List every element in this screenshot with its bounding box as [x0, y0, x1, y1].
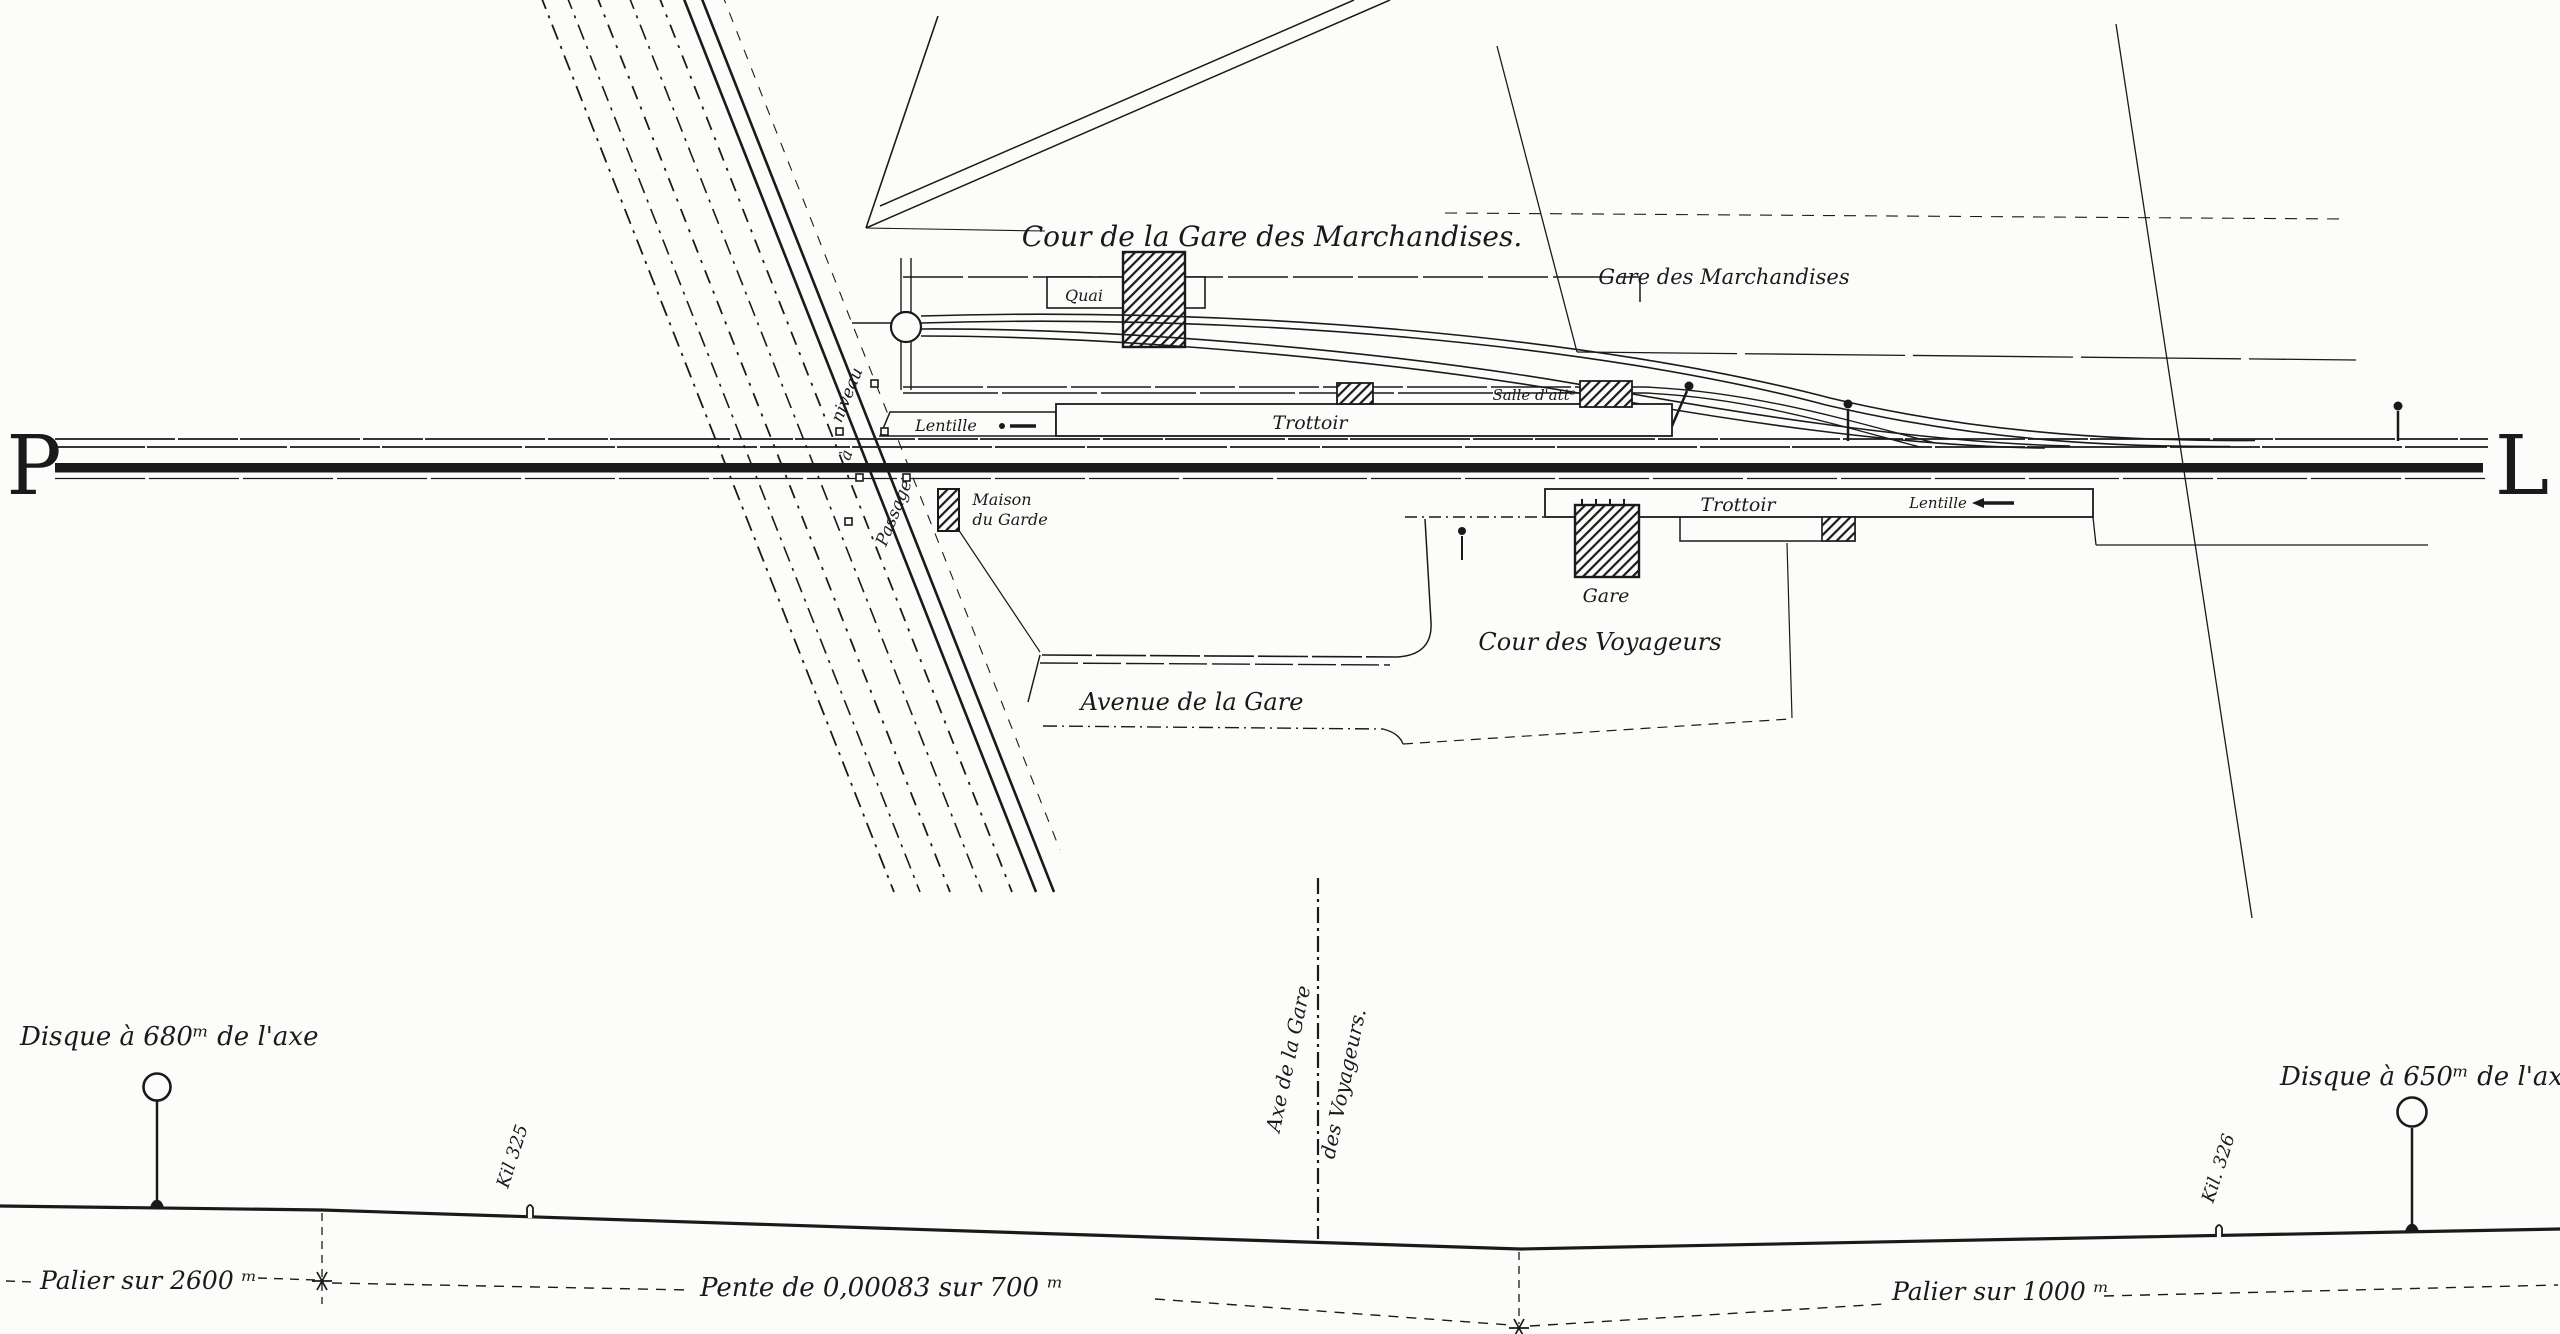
property-boundaries	[866, 0, 2356, 918]
keeper-house-label-line1: Maison	[971, 490, 1031, 509]
keeper-house-label-line2: du Garde	[972, 510, 1047, 529]
left-disc-label: Disque à 680ᵐ de l'axe	[19, 1022, 318, 1052]
crossing-word-a: à	[835, 447, 856, 463]
milepost-letter-left: P	[6, 419, 61, 514]
left-disc-base	[150, 1200, 164, 1208]
km-326-label: Kil. 326	[2198, 1131, 2240, 1206]
boundary-dashed-line	[1445, 213, 2346, 219]
right-disc-head	[2398, 1098, 2427, 1127]
goods-yard-title: Cour de la Gare des Marchandises.	[1022, 220, 1523, 253]
avenue-label: Avenue de la Gare	[1079, 688, 1304, 716]
signal-head	[1685, 382, 1694, 391]
avenue-west-cap	[1028, 655, 1040, 702]
upper-trottoir-label: Trottoir	[1272, 412, 1349, 434]
ground-profile-line	[0, 1206, 2560, 1249]
road-edge-line	[566, 0, 920, 892]
road-edge-line	[540, 0, 894, 892]
arrow-dot	[999, 423, 1005, 429]
avenue-north-edge	[1042, 655, 1397, 657]
gate-post	[871, 380, 878, 387]
signal-head	[2394, 402, 2403, 411]
road-edge-line	[596, 0, 950, 892]
right-disc-base	[2405, 1224, 2419, 1232]
signal-head	[1844, 400, 1853, 409]
upper-platforms: Lentille Trottoir Salle d'attᵉ	[880, 381, 1672, 436]
goods-shed-building	[1123, 252, 1185, 347]
left-disc-head	[144, 1074, 171, 1101]
goods-yard: Quai Cour de la Gare des Marchandises. G…	[852, 220, 1850, 390]
grade-left-label: Palier sur 2600 ᵐ	[39, 1266, 257, 1295]
grade-annotation-dashes	[6, 1281, 34, 1282]
keeper-house-building	[938, 489, 959, 531]
courtyard-east-fence	[1787, 543, 1792, 718]
station-building	[1575, 505, 1639, 577]
gate-post	[836, 428, 843, 435]
station-axis-label-line1: Axe de la Gare	[1261, 983, 1316, 1136]
station-axis-label-line2: des Voyageurs.	[1316, 1006, 1371, 1160]
grade-annotation-dashes	[332, 1283, 690, 1290]
courtyard-label: Cour des Voyageurs	[1478, 628, 1721, 656]
recess-building	[1822, 517, 1855, 541]
road-edge-line	[682, 0, 1036, 892]
grade-annotation-dashes	[258, 1278, 316, 1280]
km-post-326	[2216, 1225, 2222, 1237]
turntable-icon	[891, 312, 921, 342]
upper-trottoir-platform	[1056, 404, 1672, 436]
waiting-room-label: Salle d'attᵉ	[1493, 386, 1576, 404]
waiting-room-building	[1580, 381, 1632, 407]
grade-annotation-dashes	[1155, 1299, 1510, 1325]
grade-annotation-dashes	[1530, 1304, 1884, 1326]
goods-shed-label: Gare des Marchandises	[1598, 265, 1850, 289]
gate-post	[856, 474, 863, 481]
grade-annotation-dashes	[2104, 1285, 2558, 1296]
road-edge-line	[628, 0, 982, 892]
grade-boundary-star	[1509, 1319, 1529, 1334]
boundary-line	[866, 0, 1390, 228]
grade-middle-label: Pente de 0,00083 sur 700 ᵐ	[699, 1273, 1063, 1303]
longitudinal-profile: Disque à 680ᵐ de l'axe Disque à 650ᵐ de …	[0, 878, 2560, 1334]
courtyard-and-avenue: Cour des Voyageurs Avenue de la Gare	[1028, 517, 2428, 744]
gate-post	[845, 518, 852, 525]
km-post-325	[527, 1205, 533, 1218]
quai-label: Quai	[1065, 286, 1103, 305]
station-plan-sheet: P L Quai Cour de la Gare des Marchandise…	[0, 0, 2560, 1334]
road-edge-line	[658, 0, 1012, 892]
boundary-line	[866, 228, 1045, 231]
lower-trottoir-label: Trottoir	[1700, 494, 1777, 516]
grade-right-label: Palier sur 1000 ᵐ	[1891, 1277, 2109, 1306]
boundary-line	[1497, 46, 1577, 352]
plan-and-profile-drawing: P L Quai Cour de la Gare des Marchandise…	[0, 0, 2560, 1334]
road-crossing-band	[540, 0, 1060, 892]
keeper-house-leader	[958, 529, 1040, 652]
lower-lentille-label: Lentille	[1908, 494, 1967, 512]
crossing-word-passage: Passage	[872, 477, 917, 550]
right-disc-label: Disque à 650ᵐ de l'axe	[2279, 1062, 2560, 1092]
courtyard-west-boundary	[1397, 519, 1431, 657]
km-325-label: Kil 325	[492, 1122, 532, 1191]
boundary-line	[880, 0, 1354, 206]
yard-east-step	[2093, 517, 2096, 545]
platform-building	[1337, 383, 1373, 404]
station-building-label: Gare	[1583, 585, 1630, 607]
upper-lentille-label: Lentille	[914, 416, 977, 435]
lamp-head	[1458, 527, 1466, 535]
courtyard-south-boundary	[1403, 719, 1790, 744]
gate-post	[881, 428, 888, 435]
main-track-bold	[55, 463, 2483, 473]
road-edge-line	[700, 0, 1054, 892]
avenue-south-edge	[1043, 726, 1383, 729]
avenue-south-corner	[1383, 729, 1403, 744]
boundary-line	[1577, 352, 2356, 360]
crossing-word-niveau: niveau	[827, 365, 867, 425]
milepost-letter-right: L	[2495, 419, 2549, 514]
avenue-north-edge	[1040, 663, 1390, 665]
lower-platforms: Trottoir Lentille Gare	[1405, 489, 2093, 607]
